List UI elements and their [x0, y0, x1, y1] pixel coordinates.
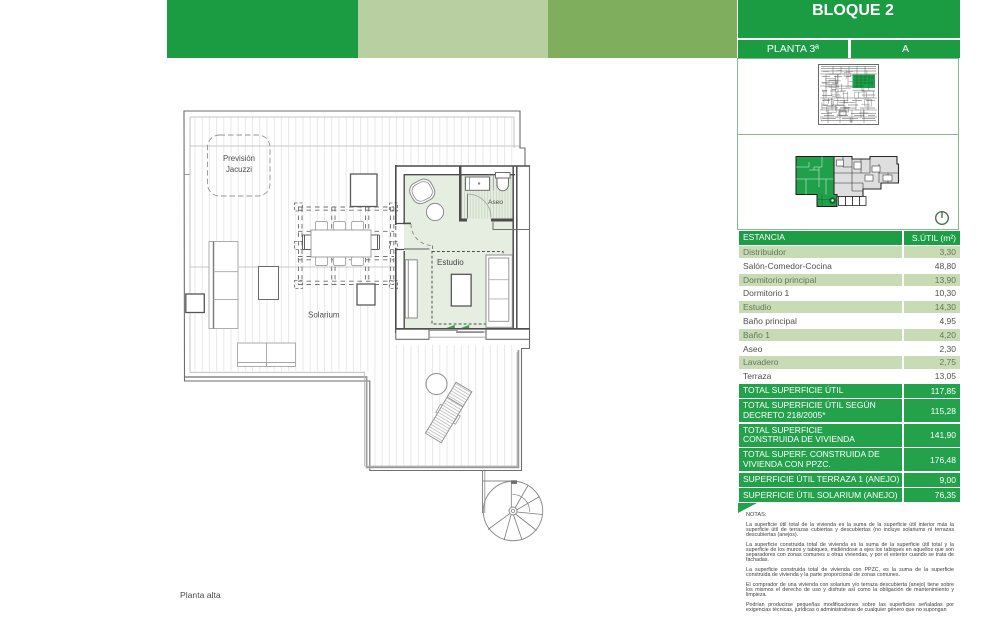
svg-text:Solarium: Solarium: [308, 311, 340, 320]
svg-text:Previsión: Previsión: [223, 154, 255, 163]
svg-text:Jacuzzi: Jacuzzi: [226, 165, 252, 174]
svg-text:Estudio: Estudio: [437, 258, 464, 267]
svg-text:Aseo: Aseo: [488, 199, 503, 206]
svg-text:Planta alta: Planta alta: [180, 590, 221, 600]
